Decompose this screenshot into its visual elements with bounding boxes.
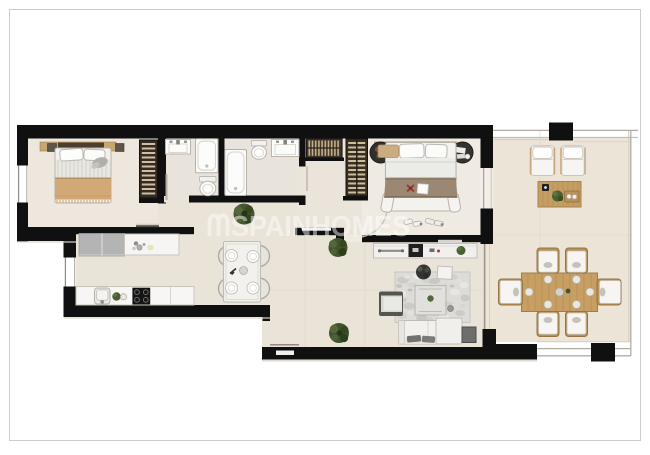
svg-text:SPAINHOMES: SPAINHOMES (231, 211, 410, 243)
